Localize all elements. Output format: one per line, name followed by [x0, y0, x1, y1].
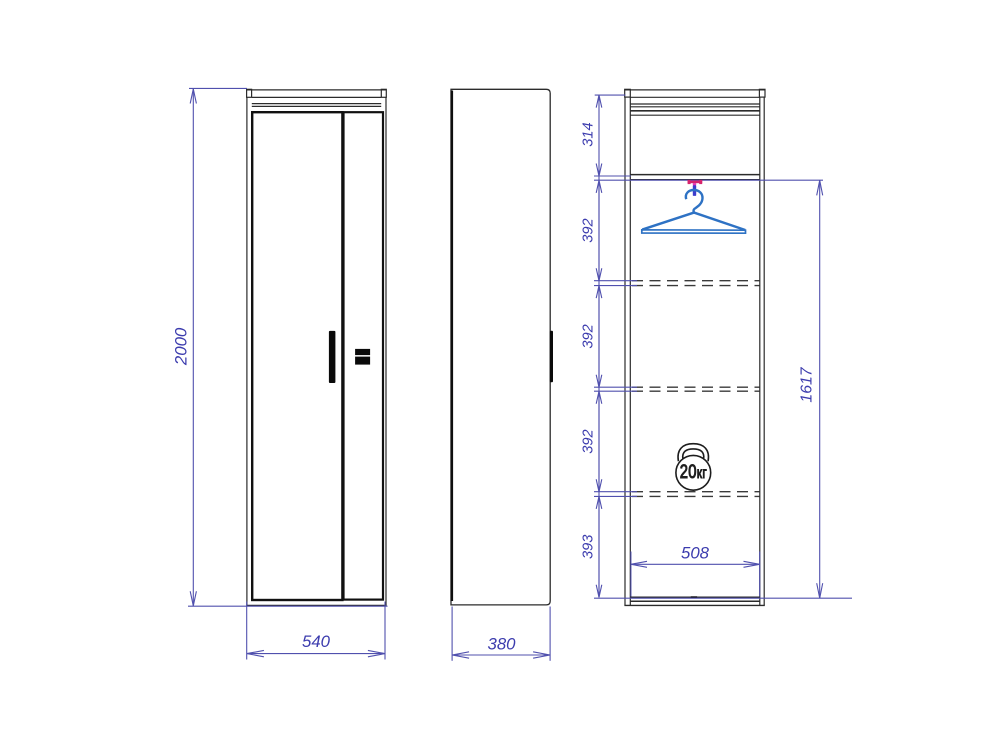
- svg-text:508: 508: [681, 544, 710, 563]
- svg-text:20кг: 20кг: [680, 461, 707, 482]
- svg-text:314: 314: [581, 122, 597, 146]
- svg-text:540: 540: [302, 632, 331, 651]
- svg-text:1617: 1617: [799, 366, 816, 402]
- svg-text:380: 380: [488, 635, 517, 654]
- svg-text:393: 393: [581, 535, 597, 559]
- svg-text:392: 392: [581, 324, 597, 348]
- svg-text:392: 392: [581, 218, 597, 242]
- svg-text:392: 392: [581, 429, 597, 453]
- svg-text:2000: 2000: [172, 327, 191, 366]
